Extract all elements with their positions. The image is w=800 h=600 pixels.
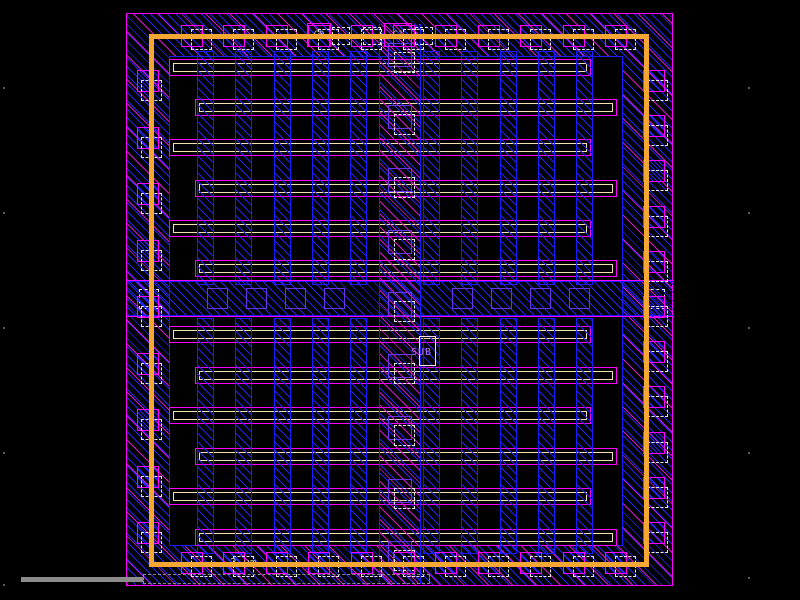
grid-dot: [3, 452, 5, 454]
grid-dot: [748, 452, 750, 454]
grid-dot: [748, 327, 750, 329]
grid-dot: [748, 577, 750, 579]
grid-dot: [3, 87, 5, 89]
grid-dot: [748, 212, 750, 214]
scale-bar[interactable]: [21, 577, 143, 582]
grid-dot: [3, 584, 5, 586]
scale-bar-extent: [143, 574, 430, 584]
grid-dot: [3, 212, 5, 214]
pin-label-sub[interactable]: SUB: [411, 347, 432, 358]
device-cell[interactable]: C0 C1 SUB: [126, 13, 673, 586]
grid-dot: [3, 327, 5, 329]
layout-editor-canvas[interactable]: C0 C1 SUB 2 µm: [0, 0, 800, 600]
metal-ring: [149, 34, 649, 567]
grid-dot: [748, 87, 750, 89]
